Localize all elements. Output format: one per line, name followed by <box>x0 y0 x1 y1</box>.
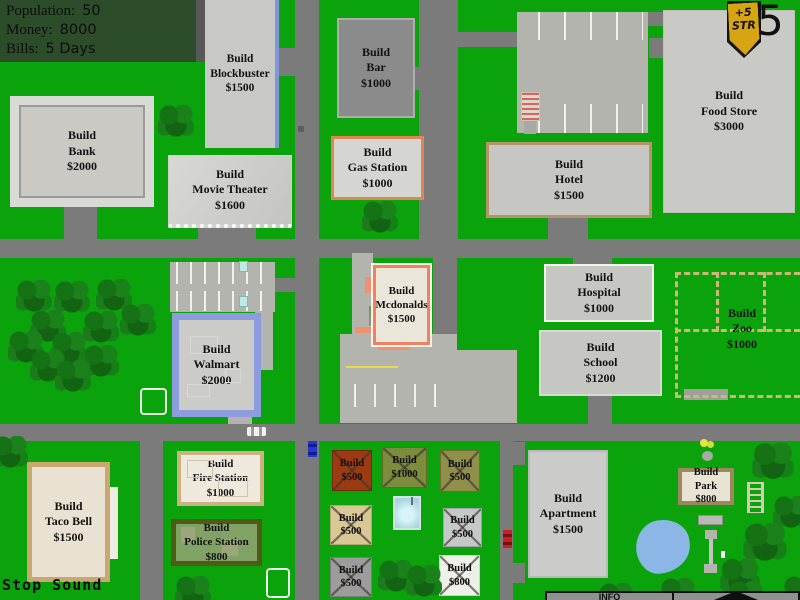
build-police-station-button[interactable]: BuildPolice Station$800 <box>171 519 262 566</box>
build-apartment-button[interactable]: BuildApartment$1500 <box>528 450 608 578</box>
tree-icon <box>120 304 156 336</box>
build-zoo-button[interactable]: BuildZoo$1000 <box>698 303 786 355</box>
expand-arrow-icon[interactable] <box>709 591 763 600</box>
drive-through-marker <box>355 327 373 333</box>
money-value: 8000 <box>60 22 97 38</box>
info-panel[interactable]: INFO <box>545 591 800 600</box>
road <box>295 0 319 600</box>
road <box>573 252 612 264</box>
road <box>64 206 97 240</box>
road <box>433 250 457 340</box>
bills-stat: Bills: 5 Days <box>6 41 196 60</box>
road <box>548 218 588 239</box>
pond-icon <box>633 517 694 577</box>
empty-plot <box>266 568 290 598</box>
info-panel-title[interactable]: INFO <box>547 593 674 600</box>
tree-icon <box>743 523 786 561</box>
bills-label: Bills: <box>6 41 39 58</box>
tree-icon <box>158 105 194 137</box>
build-movie-theater-button[interactable]: BuildMovie Theater$1600 <box>168 155 292 228</box>
road <box>513 563 525 583</box>
build-mcdonalds-button[interactable]: BuildMcdonalds$1500 <box>373 265 430 345</box>
tree-icon <box>752 443 793 480</box>
roof-detail <box>187 460 213 478</box>
build-house-button[interactable]: Build$800 <box>439 555 480 596</box>
road <box>419 0 458 255</box>
build-house-button[interactable]: Build$500 <box>440 450 480 492</box>
empty-plot <box>140 388 167 415</box>
build-house-button[interactable]: Build$500 <box>332 450 372 491</box>
tree-icon <box>54 281 90 313</box>
build-hotel-button[interactable]: BuildHotel$1500 <box>486 142 652 218</box>
road <box>277 48 295 76</box>
population-value: 50 <box>82 3 100 19</box>
parking-stalls <box>538 104 643 133</box>
panel-shadow <box>196 0 205 62</box>
tree-icon <box>0 436 28 468</box>
population-label: Population: <box>6 3 75 20</box>
road <box>457 32 517 47</box>
population-stat: Population: 50 <box>6 3 196 22</box>
fire-escape-icon <box>524 121 536 134</box>
stats-panel: Population: 50 Money: 8000 Bills: 5 Days <box>0 0 196 62</box>
tree-icon <box>83 311 119 343</box>
build-blockbuster-button[interactable]: BuildBlockbuster$1500 <box>205 0 279 148</box>
road <box>140 441 163 600</box>
bench-icon <box>698 515 723 525</box>
tree-icon <box>175 576 211 600</box>
seesaw-icon <box>705 530 717 539</box>
build-house-button[interactable]: Build$1000 <box>382 447 427 488</box>
road <box>649 38 663 58</box>
money-label: Money: <box>6 22 53 39</box>
day-counter: 5 <box>757 0 784 42</box>
bush-icon <box>702 451 713 461</box>
flower-icon <box>707 441 714 448</box>
ladder-icon <box>747 482 764 513</box>
fire-escape-icon <box>521 92 540 121</box>
road <box>273 278 297 292</box>
road-marking <box>346 366 398 368</box>
city-map: BuildZoo$1000 BuildBank$2000 BuildBlockb… <box>0 0 800 600</box>
build-school-button[interactable]: BuildSchool$1200 <box>539 330 662 396</box>
drive-through-window <box>365 277 373 293</box>
cart-return-icon <box>239 261 248 272</box>
road <box>500 441 513 600</box>
road <box>648 12 664 26</box>
build-taco-bell-button[interactable]: BuildTaco Bell$1500 <box>27 462 110 582</box>
build-walmart-button[interactable]: BuildWalmart$2000 <box>172 313 261 417</box>
sprinkler-icon <box>721 551 725 558</box>
parking-stalls <box>176 262 262 284</box>
road <box>0 424 800 441</box>
build-house-button[interactable]: Build$500 <box>330 505 372 545</box>
build-bar-button[interactable]: BuildBar$1000 <box>337 18 415 118</box>
parking-stalls <box>176 291 262 311</box>
blue-car-icon <box>308 441 317 457</box>
tree-icon <box>16 280 52 312</box>
build-hospital-button[interactable]: BuildHospital$1000 <box>544 264 654 322</box>
stop-sound-button[interactable]: Stop Sound <box>2 576 102 594</box>
road <box>198 228 256 240</box>
info-panel-expand[interactable] <box>674 593 798 600</box>
build-bank-button[interactable]: BuildBank$2000 <box>10 96 154 207</box>
build-gas-station-button[interactable]: BuildGas Station$1000 <box>331 136 424 200</box>
seesaw-icon <box>704 564 717 573</box>
road <box>588 396 612 425</box>
roof-detail <box>187 384 210 397</box>
build-park-button[interactable]: BuildPark$800 <box>678 468 734 505</box>
tree-icon <box>362 201 398 233</box>
tree-icon <box>406 565 442 597</box>
cart-return-icon <box>239 296 248 307</box>
parking-stalls <box>538 12 643 40</box>
tree-icon <box>55 360 91 392</box>
diving-board-icon <box>411 497 413 505</box>
manhole-icon <box>298 126 304 132</box>
build-house-button[interactable]: Build$500 <box>330 557 372 597</box>
red-car-icon <box>503 530 512 548</box>
build-house-button[interactable]: Build$500 <box>443 508 482 547</box>
seesaw-icon <box>709 539 713 566</box>
money-stat: Money: 8000 <box>6 22 196 41</box>
white-car-icon <box>247 427 266 436</box>
parking-stalls <box>354 384 446 407</box>
road <box>513 442 525 465</box>
roof-detail <box>190 336 218 354</box>
pool-icon <box>393 496 421 530</box>
road <box>0 239 800 258</box>
roof-detail <box>218 477 248 497</box>
bills-value: 5 Days <box>46 41 96 57</box>
parking-lot <box>457 350 517 423</box>
roof-detail <box>225 369 241 383</box>
